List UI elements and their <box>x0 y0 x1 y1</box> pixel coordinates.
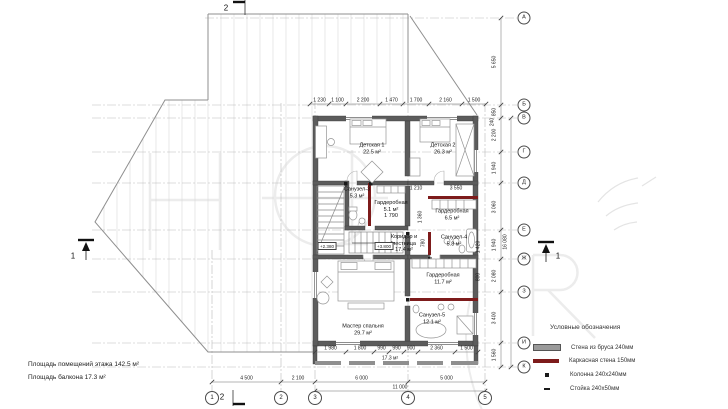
legend-item-label: Колонна 240x240мм <box>570 372 627 378</box>
watermark <box>150 146 656 409</box>
dim-label: 1 700 <box>410 98 423 103</box>
legend-item-brus-wall: Стена из бруса 240мм <box>533 344 633 351</box>
dim-label: 1 470 <box>385 98 398 103</box>
dim-label: 990 <box>392 346 400 351</box>
dim-label: 4 500 <box>240 376 253 381</box>
frame-wall-swatch <box>533 359 559 363</box>
room-area: 29.7 м² <box>342 330 383 337</box>
legend-item-post: Стойка 240x50мм <box>533 386 619 392</box>
axis-bubble-col: 3 <box>308 391 322 405</box>
dim-label: 1 500 <box>468 98 481 103</box>
room-name: Детская 1 <box>360 142 385 149</box>
room-label: Мастер спальня29.7 м² <box>342 323 383 336</box>
legend-item-column: Колонна 240x240мм <box>533 372 627 378</box>
floor-plan-page: 1 2301 1002 2001 4701 7002 1601 5001 980… <box>0 0 728 409</box>
dim-label: 1 230 <box>313 98 326 103</box>
area-summary: Площадь помещений этажа 142.5 м² Площадь… <box>28 358 139 384</box>
dim-label: 2 080 <box>492 269 497 282</box>
room-name: Гардеробная <box>435 208 468 215</box>
room-name: Санузел-4 <box>441 234 467 241</box>
dim-label: 1 940 <box>492 238 497 251</box>
axis-bubble-row: К <box>518 361 531 374</box>
dim-label: 1 980 <box>324 346 337 351</box>
room-area: 5.1 м² <box>374 207 407 214</box>
dim-label: 990 <box>377 346 385 351</box>
dim-label: 240 <box>490 118 495 126</box>
room-label: Гардеробная6.5 м² <box>435 208 468 221</box>
dim-label: 1 500 <box>460 346 473 351</box>
dim-label: 780 <box>421 239 426 247</box>
dim-label: 5 000 <box>440 376 453 381</box>
room-area: 26.3 м² <box>431 149 456 156</box>
room-extra-dim: 1 790 <box>374 213 407 220</box>
legend-item-frame-wall: Каркасная стена 150мм <box>533 358 635 364</box>
dim-label: 17.3 м² <box>382 356 398 361</box>
room-area: 5.8 м² <box>441 241 467 248</box>
post-swatch <box>544 388 550 390</box>
axis-bubble-row: А <box>518 12 531 25</box>
dim-label: 11 000 <box>393 385 408 390</box>
column-swatch <box>545 373 549 377</box>
room-label: Гардеробная11.7 м² <box>426 272 459 285</box>
room-label: Детская 226.3 м² <box>431 142 456 155</box>
dim-label: 2 100 <box>292 376 305 381</box>
dim-label: 1 800 <box>354 346 367 351</box>
room-name: Санузел-3 <box>344 186 370 193</box>
dim-label: 3 550 <box>450 186 463 191</box>
dim-label: 1 210 <box>410 186 423 191</box>
axis-bubble-col: 5 <box>478 391 492 405</box>
floor-area-text: Площадь помещений этажа 142.5 м² <box>28 358 139 371</box>
dim-label: 850 <box>492 107 497 115</box>
brus-wall-swatch <box>533 344 561 351</box>
balcony-area-text: Площадь балкона 17.3 м² <box>28 371 139 384</box>
legend-item-label: Каркасная стена 150мм <box>569 358 635 364</box>
dim-label: 2 200 <box>357 98 370 103</box>
axis-bubble-col: 2 <box>274 391 288 405</box>
room-label: Гардеробная5.1 м²1 790 <box>374 200 407 220</box>
dim-label: 2 360 <box>430 346 443 351</box>
room-area: 6.5 м² <box>435 215 468 222</box>
room-area: 5.3 м² <box>344 193 370 200</box>
dim-label: 3 400 <box>492 311 497 324</box>
room-area: 11.7 м² <box>426 279 459 286</box>
room-label: Детская 122.5 м² <box>360 142 385 155</box>
dim-label: 16 080 <box>503 234 508 249</box>
dim-label: 6 000 <box>355 376 368 381</box>
room-label: Санузел-35.3 м² <box>344 186 370 199</box>
room-name: Мастер спальня <box>342 323 383 330</box>
room-area: 12.1 м² <box>419 319 445 326</box>
dim-label: 800 <box>476 273 481 281</box>
room-name: Гардеробная <box>426 272 459 279</box>
dim-label: 1 940 <box>492 161 497 174</box>
axis-bubble-row: Б <box>518 99 531 112</box>
dim-label: 1 420 <box>476 241 481 254</box>
axis-bubble-col: 4 <box>401 391 415 405</box>
room-label: Санузел-45.8 м² <box>441 234 467 247</box>
axis-bubble-row: В <box>518 112 531 125</box>
room-name: Санузел-5 <box>419 312 445 319</box>
dim-label: 1 100 <box>331 98 344 103</box>
dim-label: 900 <box>407 346 415 351</box>
axis-bubble-row: И <box>518 337 531 350</box>
axis-bubble-row: З <box>518 286 531 299</box>
dim-label: 5 650 <box>492 55 497 68</box>
legend-item-label: Стойка 240x50мм <box>570 386 619 392</box>
axis-bubble-row: Е <box>518 224 531 237</box>
axis-bubble-row: Д <box>518 177 531 190</box>
dim-label: 2 200 <box>492 129 497 142</box>
legend-title: Условные обозначения <box>550 324 620 331</box>
axis-bubble-col: 1 <box>205 391 219 405</box>
room-area: 22.5 м² <box>360 149 385 156</box>
legend-item-label: Стена из бруса 240мм <box>571 345 633 351</box>
dim-label: 2 160 <box>439 98 452 103</box>
section-label: 1 <box>71 252 75 261</box>
section-label: 2 <box>224 4 228 13</box>
room-name: Гардеробная <box>374 200 407 207</box>
room-label: Санузел-512.1 м² <box>419 312 445 325</box>
level-mark: +2.380 <box>318 242 337 250</box>
dim-label: 3 060 <box>492 200 497 213</box>
axis-bubble-row: Ж <box>518 253 531 266</box>
section-label: 1 <box>556 252 560 261</box>
dim-label: 1 560 <box>492 349 497 362</box>
level-mark: +3.800 <box>375 242 394 250</box>
dim-label: 1 360 <box>418 211 423 224</box>
axis-bubble-row: Г <box>518 146 531 159</box>
room-name: Детская 2 <box>431 142 456 149</box>
section-label: 2 <box>220 393 224 402</box>
